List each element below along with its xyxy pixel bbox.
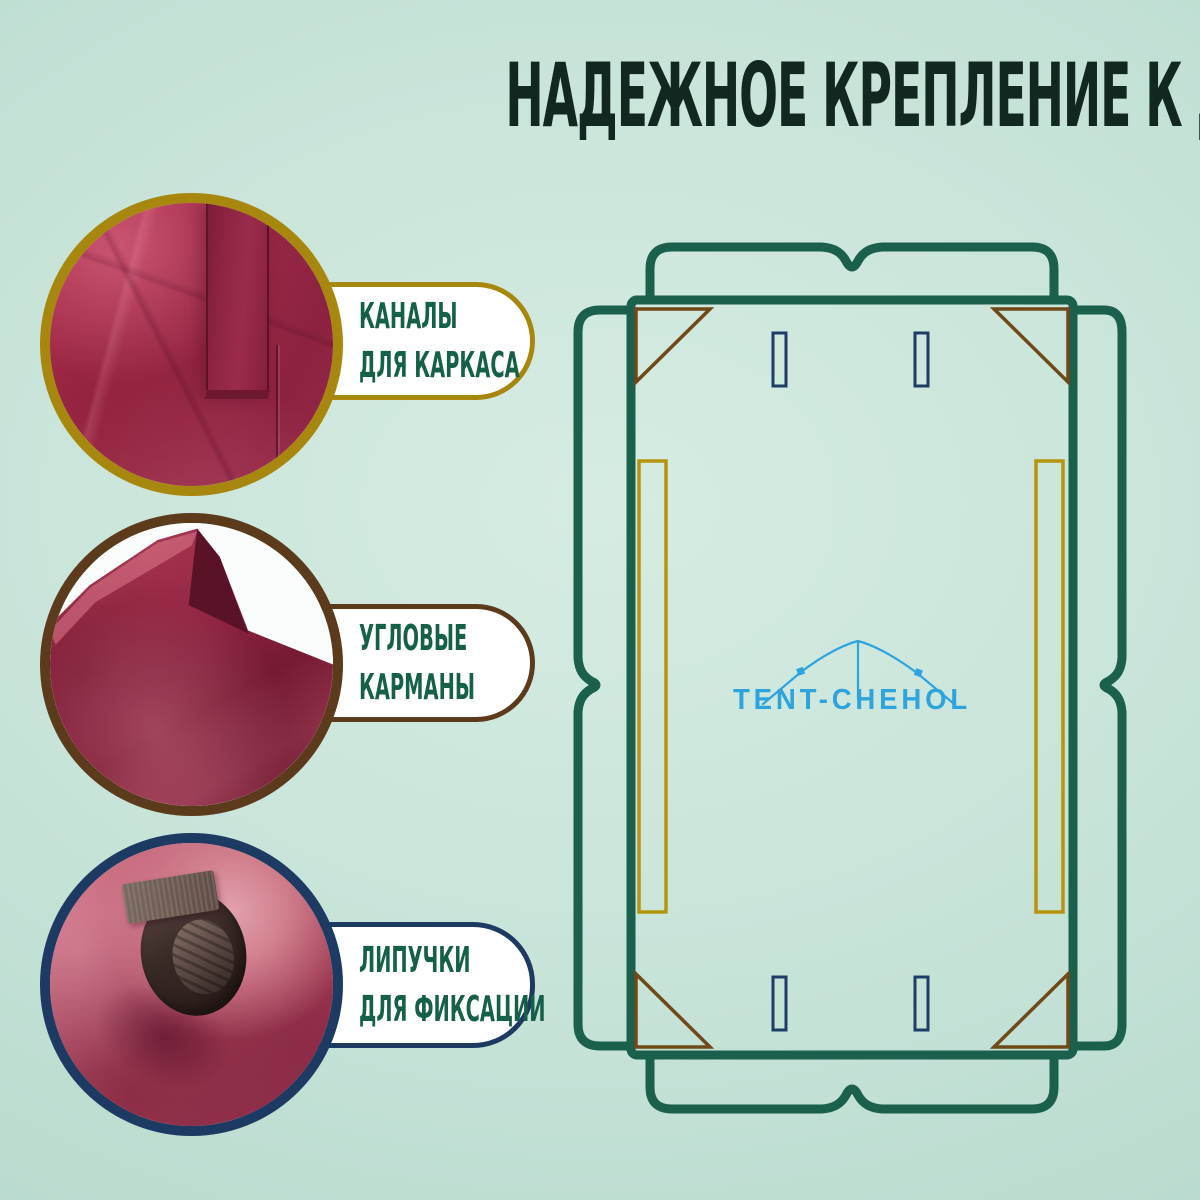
corner-pocket-top-right <box>994 309 1068 382</box>
stitch-seam <box>276 345 278 487</box>
velcro-slot-bottom-right <box>915 977 928 1030</box>
left-flap <box>578 310 631 1046</box>
bottom-flap <box>650 1055 1054 1109</box>
callout-line-1: КАНАЛЫ <box>359 296 458 337</box>
brand-logo-text: TENT-CHEHOL <box>733 684 971 716</box>
frame-channel-left <box>639 461 666 912</box>
top-flap <box>650 247 1054 300</box>
right-flap <box>1073 310 1122 1046</box>
callout-line-1: ЛИПУЧКИ <box>359 940 471 981</box>
frame-channel-right <box>1036 461 1063 912</box>
poster: НАДЕЖНОЕ КРЕПЛЕНИЕ К ДУГАМ КРЫШИ КАНАЛЫ … <box>0 0 1200 1200</box>
callout-label: ЛИПУЧКИ ДЛЯ ФИКСАЦИИ <box>359 936 451 1034</box>
callout-line-1: УГЛОВЫЕ <box>359 618 467 659</box>
channel-strip <box>206 197 269 389</box>
fabric-photo <box>50 203 333 486</box>
callout-line-2: ДЛЯ ФИКСАЦИИ <box>359 989 546 1030</box>
page-title: НАДЕЖНОЕ КРЕПЛЕНИЕ К ДУГАМ КРЫШИ <box>0 52 1200 140</box>
brand-logo: TENT-CHEHOL <box>733 641 971 716</box>
corner-pocket-top-left <box>636 309 710 382</box>
callout-line-2: ДЛЯ КАРКАСА <box>359 345 520 386</box>
callout-photo-velcro <box>40 833 343 1136</box>
velcro-slot-top-left <box>773 333 786 386</box>
callout-line-2: КАРМАНЫ <box>359 667 475 708</box>
corner-pocket-bottom-left <box>636 974 710 1047</box>
cover-body-outline <box>631 300 1073 1055</box>
page-title-text: НАДЕЖНОЕ КРЕПЛЕНИЕ К ДУГАМ КРЫШИ <box>505 52 1200 140</box>
fabric-photo <box>50 843 333 1126</box>
callout-label: УГЛОВЫЕ КАРМАНЫ <box>359 614 451 712</box>
fabric-photo <box>50 523 333 806</box>
corner-pocket-bottom-right <box>994 974 1068 1047</box>
tent-cover-diagram: TENT-CHEHOL <box>560 230 1140 1130</box>
callout-label: КАНАЛЫ ДЛЯ КАРКАСА <box>359 292 451 390</box>
velcro-slot-top-right <box>915 333 928 386</box>
velcro-slot-bottom-left <box>773 977 786 1030</box>
callout-photo-frame-channels <box>40 193 343 496</box>
callout-photo-corner-pockets <box>40 513 343 816</box>
fabric-corner <box>50 523 333 806</box>
